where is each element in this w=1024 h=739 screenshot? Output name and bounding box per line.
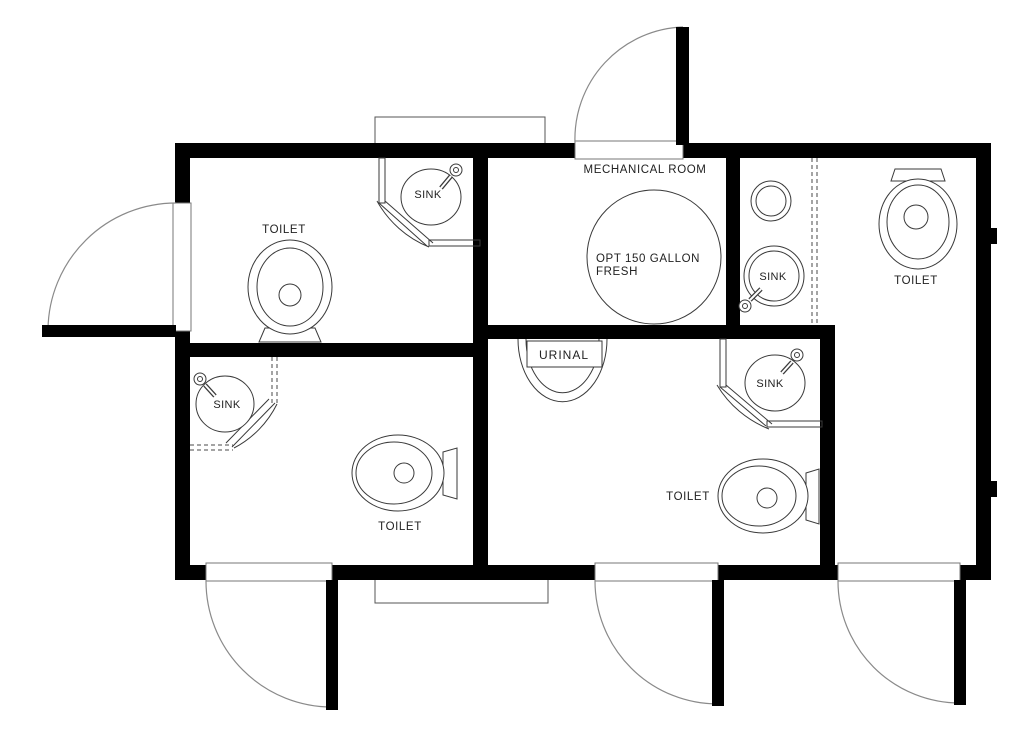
top-door-opening (575, 141, 683, 159)
sink-label: SINK (759, 271, 787, 283)
door-swing-arc (595, 581, 718, 704)
bottom-right-entry-door (838, 580, 966, 705)
vanity-edge-horizontal (429, 240, 480, 246)
sink-label: SINK (414, 189, 442, 201)
privacy-partition-dashed (812, 158, 817, 325)
room-right-restroom: SINK TOILET (739, 158, 957, 325)
door-leaf (42, 325, 176, 337)
door-swing-arc (575, 27, 683, 143)
left-door-opening (173, 203, 191, 331)
tank-label-line1: OPT 150 GALLON (596, 253, 700, 265)
floor-plan-canvas: TOILET SINK MECHANICAL ROOM OPT 150 GALL… (0, 0, 1024, 739)
toilet-bowl-outer (248, 240, 332, 334)
vanity-edge-vertical (379, 158, 385, 203)
toilet-tank (443, 448, 457, 499)
bottom-right-door-opening (838, 563, 960, 581)
bottom-left-entry-door (206, 580, 338, 710)
vanity-edge-vertical (720, 339, 726, 387)
interior-wall-left-center (473, 143, 488, 580)
door-swing-arc (206, 581, 332, 707)
faucet-icon (739, 300, 751, 312)
interior-wall-mechanical (726, 143, 740, 339)
sink-label: SINK (756, 378, 784, 390)
top-entry-door (575, 27, 689, 145)
mechanical-room-label: MECHANICAL ROOM (584, 164, 707, 176)
room-mechanical: MECHANICAL ROOM OPT 150 GALLON FRESH (584, 164, 721, 324)
top-step (375, 117, 545, 145)
door-swing-arc (838, 581, 960, 703)
interior-wall-center-right (820, 325, 835, 580)
room-bottom-left-restroom: SINK TOILET (190, 357, 457, 533)
door-leaf (712, 580, 724, 706)
interior-wall-center-horizontal (473, 325, 835, 339)
wall-port (751, 181, 791, 221)
toilet-bowl-outer (352, 435, 444, 511)
toilet-label: TOILET (262, 224, 306, 236)
room-bottom-middle-restroom: URINAL SINK TOILET (518, 339, 822, 533)
tank-label-line2: FRESH (596, 266, 638, 278)
right-wall-fitting-top (989, 228, 997, 244)
toilet-label: TOILET (894, 275, 938, 287)
faucet-icon (194, 373, 206, 385)
door-swing-arc (48, 203, 176, 329)
toilet-bowl-outer (879, 179, 957, 269)
door-leaf (676, 27, 689, 145)
door-leaf (326, 580, 338, 710)
floor-plan-drawing: TOILET SINK MECHANICAL ROOM OPT 150 GALL… (0, 0, 1024, 739)
vanity-edge-vertical-dashed (272, 357, 277, 403)
bottom-left-door-opening (206, 563, 332, 581)
sink-label: SINK (213, 399, 241, 411)
toilet-label: TOILET (666, 491, 710, 503)
vanity-edge-horizontal-dashed (190, 445, 233, 450)
bottom-middle-entry-door (595, 580, 724, 706)
interior-wall-left-horizontal (175, 343, 488, 357)
bottom-middle-door-opening (595, 563, 718, 581)
toilet-label: TOILET (378, 521, 422, 533)
right-exterior-wall (976, 143, 991, 580)
faucet-icon (450, 164, 462, 176)
bottom-step (375, 578, 548, 603)
right-wall-fitting-bottom (989, 481, 997, 497)
door-leaf (954, 580, 966, 705)
faucet-icon (791, 349, 803, 361)
urinal-label: URINAL (539, 348, 589, 362)
room-top-left-restroom: TOILET SINK (248, 158, 480, 342)
left-entry-door (42, 203, 176, 337)
vanity-edge-horizontal (767, 421, 822, 427)
toilet-bowl-outer (718, 459, 808, 533)
